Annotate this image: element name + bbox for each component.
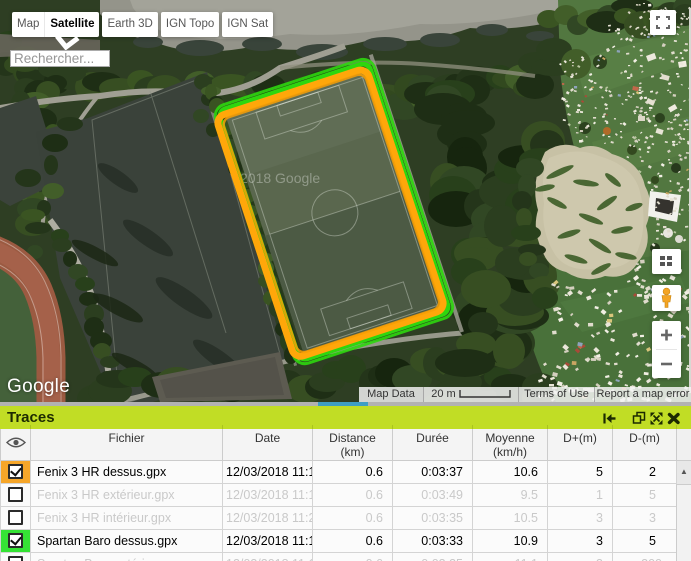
svg-text:2018 Google: 2018 Google: [240, 170, 320, 186]
